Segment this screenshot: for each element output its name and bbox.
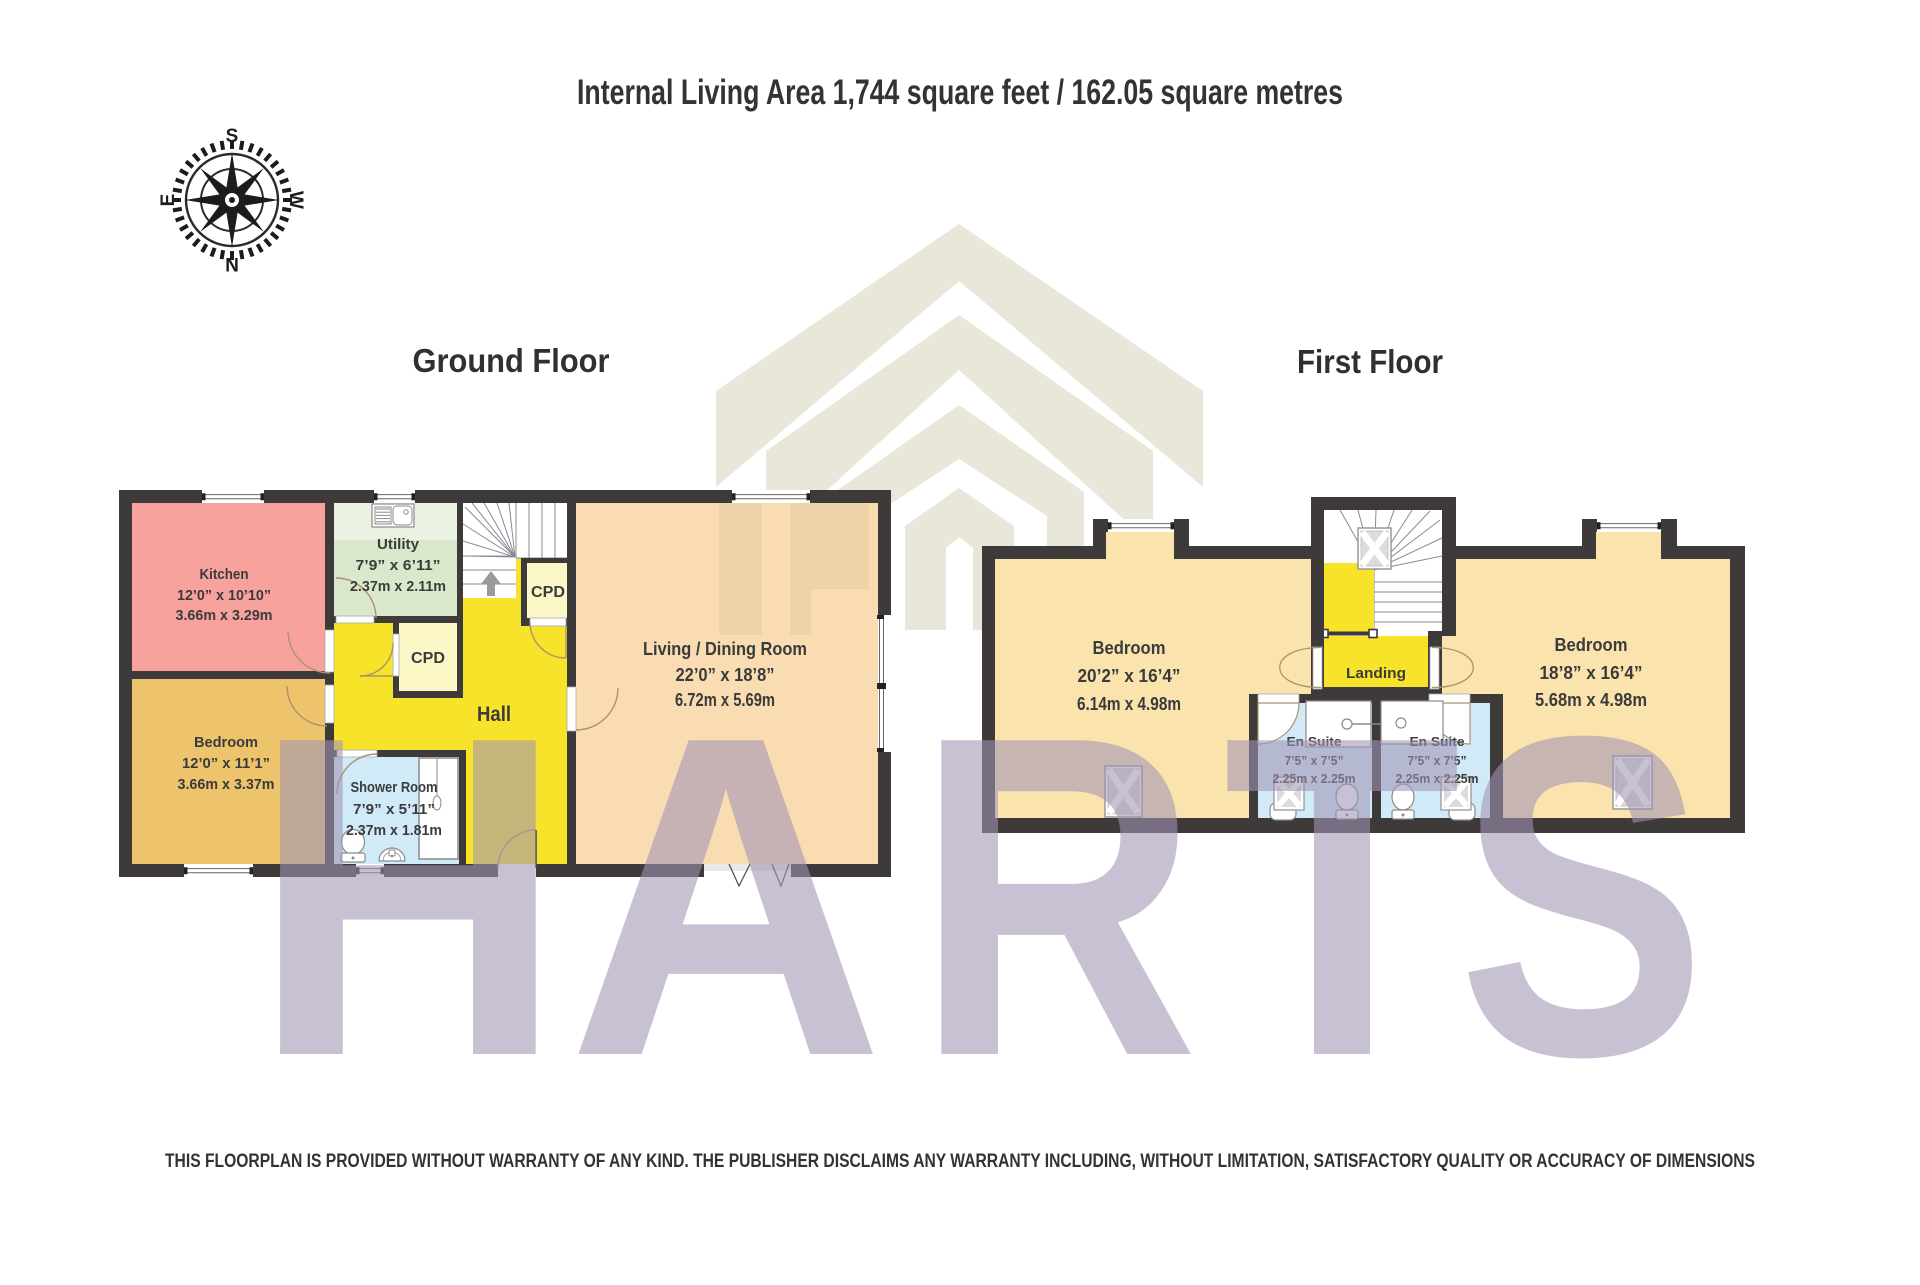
svg-text:Internal Living Area 1,744 squ: Internal Living Area 1,744 square feet /… <box>577 73 1343 112</box>
svg-text:T: T <box>1223 641 1461 1151</box>
svg-text:12’0” x 10’10”: 12’0” x 10’10” <box>177 587 271 604</box>
svg-text:Ground Floor: Ground Floor <box>413 342 610 379</box>
svg-text:First Floor: First Floor <box>1297 343 1443 380</box>
svg-text:W: W <box>285 191 306 209</box>
svg-text:S: S <box>226 126 239 147</box>
svg-text:THIS FLOORPLAN IS PROVIDED WIT: THIS FLOORPLAN IS PROVIDED WITHOUT WARRA… <box>165 1151 1755 1172</box>
svg-text:Utility: Utility <box>377 536 420 553</box>
svg-text:Kitchen: Kitchen <box>200 566 249 583</box>
svg-text:S: S <box>1458 641 1707 1151</box>
svg-text:E: E <box>158 194 179 207</box>
svg-text:N: N <box>225 253 239 274</box>
svg-text:3.66m x 3.29m: 3.66m x 3.29m <box>176 607 273 624</box>
svg-text:CPD: CPD <box>531 584 565 601</box>
svg-text:Bedroom: Bedroom <box>194 734 258 751</box>
svg-text:7’9” x 6’11”: 7’9” x 6’11” <box>356 557 441 574</box>
svg-text:A: A <box>568 641 885 1151</box>
svg-text:2.37m x 2.11m: 2.37m x 2.11m <box>350 578 446 595</box>
svg-text:H: H <box>251 641 565 1151</box>
svg-text:R: R <box>915 641 1199 1151</box>
